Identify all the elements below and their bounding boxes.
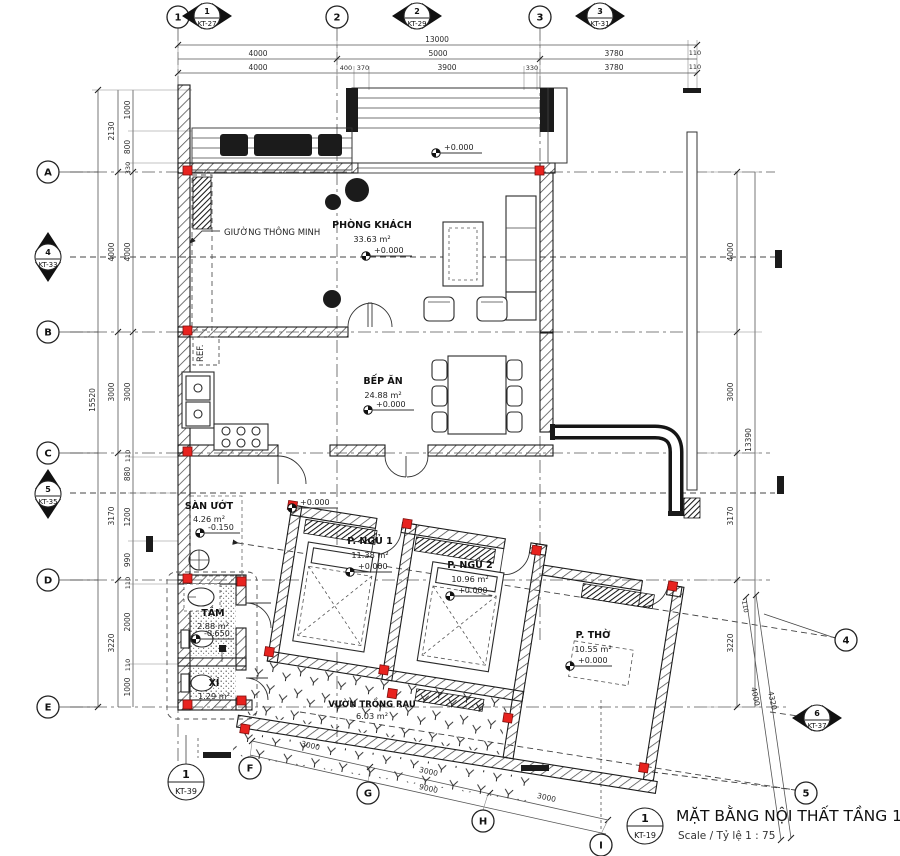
detail-ref-kt37: 6 KT-37 [792, 705, 842, 731]
shower-icon [219, 645, 226, 652]
level-text: +0.000 [578, 656, 608, 665]
grid-bubble-row-d: D [37, 569, 98, 591]
level-text: +0.000 [376, 400, 406, 409]
dim-right-major-2: 3170 [726, 506, 735, 525]
porch-post-right [540, 88, 554, 132]
section-ref-num: 1 [182, 768, 190, 781]
dim-top-major-2: 3780 [604, 49, 623, 58]
dim-left-major-0: 2130 [107, 121, 116, 140]
dim-left-major-3: 3170 [107, 506, 116, 525]
grid-bubble-row-f: F [239, 757, 261, 779]
deck-seat-2 [318, 134, 342, 156]
grid-bubble-row-h: H [472, 810, 494, 832]
grid-bubble-label: 3 [537, 13, 544, 24]
room-area-bath: 2.88 m² [197, 621, 229, 631]
porch-post-left [346, 88, 358, 132]
grid-bubble-row-b: B [37, 321, 98, 343]
dim-right-major-0: 4000 [726, 242, 735, 261]
sheet-scale: Scale / Tỷ lệ 1 : 75 [678, 830, 775, 842]
title-block: 1 KT-19 MẶT BẰNG NỘI THẤT TẦNG 1 Scale /… [627, 804, 900, 844]
dim-left-total: 15520 [88, 388, 97, 412]
chair [507, 412, 522, 432]
dim-top-minor-6: 110 [689, 63, 701, 71]
chair [507, 360, 522, 380]
sofa-corner [506, 292, 536, 320]
dim-right-major-3: 3220 [726, 633, 735, 652]
dim-right-total: 13390 [744, 428, 753, 452]
room-name-living: PHÒNG KHÁCH [332, 219, 412, 231]
dim-top-major-3: 110 [689, 49, 701, 57]
grid-bubble-row-e: E [37, 696, 98, 718]
chair [507, 386, 522, 406]
level-marker-icon: +0.000 [432, 143, 482, 157]
armchair [424, 297, 454, 321]
detail-ref-kt29: 2 KT-29 [392, 3, 442, 29]
dim-top-total: 13000 [425, 35, 449, 44]
bedroom-wing [232, 498, 691, 821]
grid-bubble-label: 1 [175, 13, 182, 24]
armchair [477, 297, 507, 321]
level-text: -0.150 [208, 523, 234, 532]
room-name-bath: TẮM [201, 606, 224, 619]
detail-ref-kt31: 3 KT-31 [575, 3, 625, 29]
detail-ref-num: 2 [414, 7, 420, 16]
grid-bubble-label: 2 [334, 13, 341, 24]
detail-ref-sheet: KT-37 [807, 722, 826, 730]
porch [192, 88, 567, 170]
plant-icon [325, 194, 341, 210]
room-area-wetfloor: 4.26 m² [193, 514, 225, 524]
chair [432, 360, 447, 380]
dim-left-minor-1: 800 [123, 140, 132, 155]
floor-plan-sheet: 13000 4000 5000 3780 110 4000 400 370 39… [0, 0, 900, 856]
level-text: +0.000 [300, 498, 330, 507]
room-area-worship: 10.55 m² [574, 644, 611, 654]
detail-ref-num: 4 [45, 248, 51, 257]
grid-bubble-label: 5 [803, 789, 810, 800]
level-text: +0.000 [458, 586, 488, 595]
dimensions-right: 4000 3000 3170 3220 13390 [700, 169, 762, 710]
chair [432, 412, 447, 432]
detail-ref-num: 5 [45, 485, 51, 494]
grid-bubble-5: 5 [795, 782, 817, 804]
grid-bubble-label: A [44, 168, 52, 179]
level-marker-icon: +0.000 [566, 656, 612, 670]
dimensions-top: 13000 4000 5000 3780 110 4000 400 370 39… [175, 35, 701, 92]
room-area-garden: 6.03 m² [356, 711, 388, 721]
title-ref-sheet: KT-19 [634, 831, 656, 840]
dim-left-minor-4: 3000 [123, 382, 132, 401]
stove [214, 424, 268, 450]
level-marker-icon: +0.000 [362, 246, 412, 260]
detail-ref-sheet: KT-33 [38, 261, 57, 269]
detail-ref-kt35: 5 KT-35 [35, 469, 61, 519]
kitchen-furniture [182, 337, 522, 450]
level-text: +0.000 [444, 143, 474, 152]
dim-slant-0: 110 [740, 600, 750, 614]
dim-bottom-seg-2: 3000 [536, 791, 557, 804]
grid-bubble-row-c: C [37, 442, 98, 464]
floor-plan-drawing: 13000 4000 5000 3780 110 4000 400 370 39… [0, 0, 900, 856]
detail-ref-sheet: KT-27 [197, 20, 216, 28]
grid-bubble-label: I [599, 841, 603, 852]
dim-top-major-0: 4000 [248, 49, 267, 58]
dim-top-minor-1: 400 [340, 64, 352, 72]
room-name-bedroom1: P. NGỦ 1 [347, 534, 393, 547]
title-ref-kt19: 1 KT-19 [627, 808, 663, 844]
level-marker-icon: -0.150 [196, 523, 240, 537]
room-name-wetfloor: SÀN ƯỚT [185, 500, 234, 512]
detail-ref-kt33: 4 KT-33 [35, 232, 61, 282]
grid-bubble-label: G [364, 789, 372, 800]
dimensions-left: 15520 2130 4000 3000 3170 3220 1000 800 … [88, 87, 192, 710]
dim-right-major-1: 3000 [726, 382, 735, 401]
detail-ref-kt27: 1 KT-27 [182, 3, 232, 29]
section-ref-sheet: KT-39 [175, 787, 197, 796]
dim-top-minor-3: 3900 [437, 63, 456, 72]
level-marker-icon: +0.000 [364, 400, 414, 414]
grid-bubble-4: 4 [835, 629, 857, 651]
dim-slant-1: 4000 [749, 686, 762, 707]
smart-bed-label: GIƯỜNG THÔNG MINH [224, 226, 320, 238]
chair [432, 386, 447, 406]
grid-bubble-label: B [44, 328, 52, 339]
dim-slant-2: 4320 [766, 690, 779, 711]
deck-seat-1 [220, 134, 248, 156]
plant-icon [345, 178, 369, 202]
dim-left-major-1: 4000 [107, 242, 116, 261]
fence-right [683, 88, 701, 518]
dim-left-minor-8: 990 [123, 553, 132, 568]
dim-top-minor-0: 4000 [248, 63, 267, 72]
room-area-bedroom1: 11.38 m² [351, 550, 388, 560]
grid-bubble-label: F [247, 764, 254, 775]
grid-bubble-label: E [45, 703, 52, 714]
sheet-title: MẶT BẰNG NỘI THẤT TẦNG 1 [676, 804, 900, 825]
grid-bubble-col-3: 3 [529, 6, 551, 28]
grid-bubble-row-i: I [590, 834, 612, 856]
dim-left-minor-5: 110 [124, 450, 132, 462]
dim-top-minor-5: 3780 [604, 63, 623, 72]
dim-left-minor-9: 110 [124, 577, 132, 589]
room-area-bedroom2: 10.96 m² [451, 574, 488, 584]
window-band-top [358, 163, 540, 173]
dim-left-minor-6: 880 [123, 467, 132, 482]
grid-bubble-label: 4 [843, 636, 850, 647]
detail-ref-sheet: KT-31 [590, 20, 609, 28]
room-area-kitchen: 24.88 m² [364, 390, 401, 400]
grid-bubble-row-a: A [37, 161, 98, 183]
room-name-bedroom2: P. NGỦ 2 [447, 558, 493, 571]
dim-left-major-2: 3000 [107, 382, 116, 401]
dim-left-minor-3: 4000 [123, 242, 132, 261]
sofa [506, 196, 536, 292]
dim-left-minor-12: 1000 [123, 677, 132, 696]
dim-top-minor-4: 330 [526, 64, 538, 72]
detail-ref-num: 1 [204, 7, 210, 16]
room-name-wc: XÍ [209, 677, 220, 689]
room-name-worship: P. THỜ [576, 629, 612, 641]
dim-left-minor-2: 330 [124, 162, 132, 174]
room-area-living: 33.63 m² [353, 234, 390, 244]
plant-icon [323, 290, 341, 308]
grid-bubble-label: C [44, 449, 51, 460]
duct-elbow [550, 424, 684, 516]
dim-left-major-4: 3220 [107, 633, 116, 652]
level-text: +0.000 [374, 246, 404, 255]
dim-top-minor-2: 370 [357, 64, 369, 72]
dim-left-minor-7: 1200 [123, 507, 132, 526]
level-text: +0.000 [358, 562, 388, 571]
grid-bubble-label: H [479, 817, 487, 828]
dim-top-major-1: 5000 [428, 49, 447, 58]
title-ref-num: 1 [641, 812, 649, 825]
room-area-wc: 1.29 m² [198, 691, 230, 701]
grid-bubble-col-2: 2 [326, 6, 348, 28]
detail-ref-num: 6 [814, 709, 820, 718]
section-ref-kt39: 1 KT-39 [168, 764, 204, 800]
grid-bubble-row-g: G [357, 782, 379, 804]
detail-ref-num: 3 [597, 7, 603, 16]
dining-table [448, 356, 506, 434]
detail-ref-sheet: KT-35 [38, 498, 57, 506]
detail-ref-sheet: KT-29 [407, 20, 426, 28]
grid-bubble-label: D [44, 576, 52, 587]
dim-left-minor-11: 110 [124, 659, 132, 671]
dim-left-minor-0: 1000 [123, 100, 132, 119]
dim-left-minor-10: 2000 [123, 612, 132, 631]
room-name-kitchen: BẾP ĂN [363, 374, 402, 387]
deck-bench [254, 134, 312, 156]
fridge-label: REF. [196, 344, 206, 362]
